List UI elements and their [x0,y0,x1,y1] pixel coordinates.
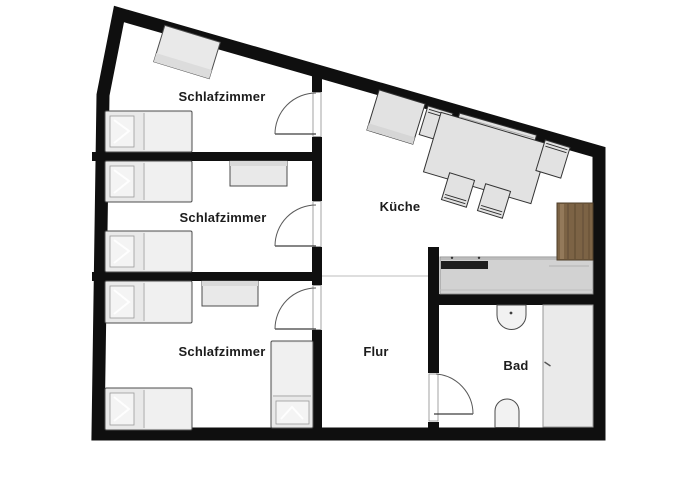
kitchen-counter [440,257,593,294]
wall-bedroom2-bedroom3 [92,272,322,281]
door-frame [313,202,321,247]
label-schlafzimmer-bottom: Schlafzimmer [179,344,266,359]
wall-bedrooms-vertical-seg2 [312,137,322,201]
bed-icon [105,111,192,152]
floor-plan-canvas: Schlafzimmer Schlafzimmer Küche Schlafzi… [0,0,700,500]
label-bad: Bad [503,358,528,373]
bed-icon [105,388,192,430]
stove-icon [441,261,488,269]
label-schlafzimmer-top: Schlafzimmer [179,89,266,104]
counter-knob-icon [451,257,453,259]
door-frame [313,93,321,137]
dresser-icon [230,161,287,186]
counter-knob-icon [478,257,480,259]
wall-flur-bad-seg2 [428,422,439,434]
door-frame [313,286,321,330]
wall-bedrooms-vertical-seg3 [312,247,322,285]
label-schlafzimmer-middle: Schlafzimmer [180,210,267,225]
bed-icon [105,231,192,272]
wall-bedrooms-vertical-seg1 [312,66,322,92]
dresser-icon [202,281,258,306]
bed-icon [105,161,192,202]
label-kueche: Küche [380,199,421,214]
bed-vertical-icon [271,341,313,428]
label-flur: Flur [363,344,388,359]
floor-plan-svg: Schlafzimmer Schlafzimmer Küche Schlafzi… [0,0,700,500]
wood-cabinet-icon [557,203,593,260]
toilet-icon [497,305,526,330]
wall-bedroom1-bedroom2 [92,152,322,161]
wall-flur-bad-seg1 [428,247,439,373]
bed-icon [105,281,192,323]
shower-icon [543,305,593,427]
sink-icon [495,399,519,428]
wall-kueche-bad [428,294,595,305]
